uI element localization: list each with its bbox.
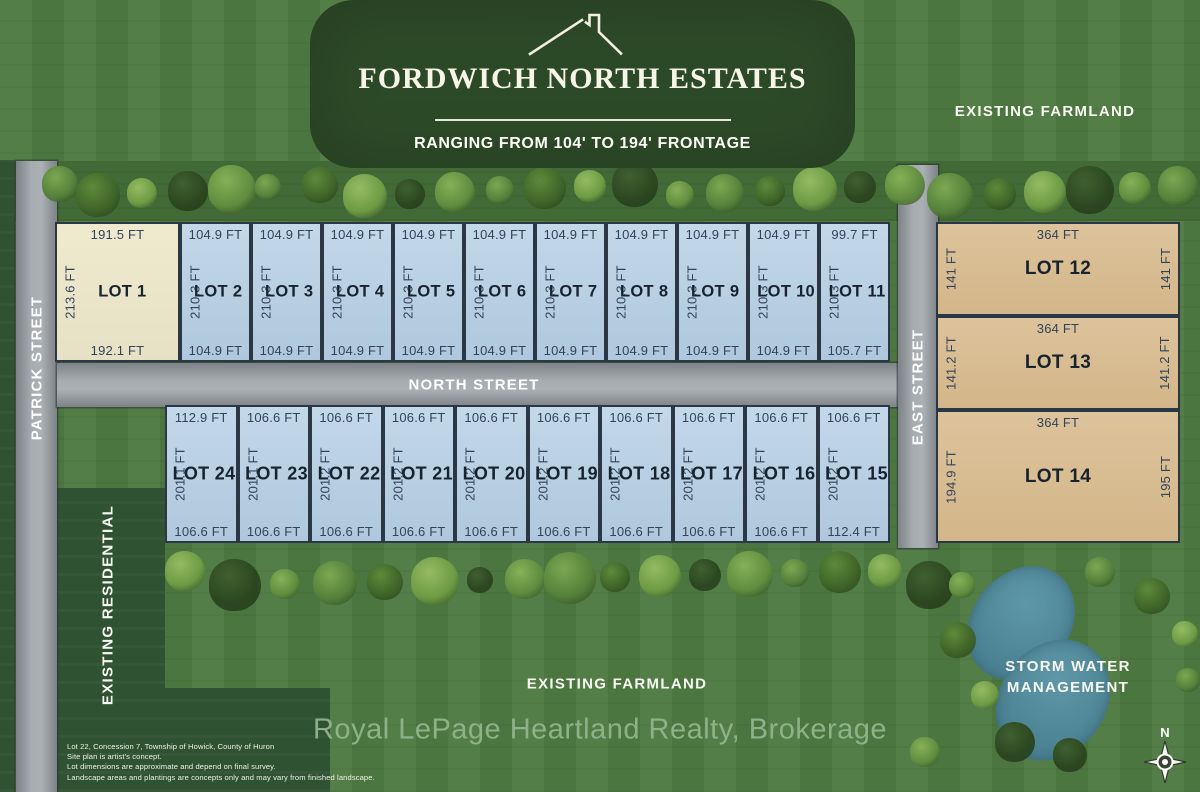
- lot-number-label: LOT 15: [825, 464, 888, 485]
- tree-icon: [995, 722, 1035, 762]
- lot-frontage-top: 106.6 FT: [682, 410, 736, 425]
- lot-number-label: LOT 6: [478, 283, 526, 302]
- tree-icon: [524, 167, 566, 209]
- lot-plot-lot-10: 104.9 FT210.3 FTLOT 10104.9 FT: [748, 222, 819, 362]
- left-edge-green: [0, 160, 15, 792]
- tree-icon: [755, 176, 785, 206]
- east-street-label: EAST STREET: [910, 329, 927, 446]
- tree-icon: [781, 559, 809, 587]
- lot-depth-left: 141.2 FT: [944, 336, 959, 390]
- tree-icon: [367, 564, 403, 600]
- tree-icon: [910, 737, 940, 767]
- lot-frontage-bottom: 106.6 FT: [464, 524, 518, 539]
- lot-frontage-top: 99.7 FT: [831, 227, 877, 242]
- north-street-label: NORTH STREET: [408, 377, 539, 394]
- tree-icon: [209, 559, 261, 611]
- tree-icon: [940, 622, 976, 658]
- lot-plot-lot-6: 104.9 FT210.3 FTLOT 6104.9 FT: [464, 222, 535, 362]
- disclaimer-line: Site plan is artist's concept.: [67, 752, 375, 762]
- lot-depth-left: 194.9 FT: [944, 450, 959, 504]
- lot-frontage-bottom: 106.6 FT: [609, 524, 663, 539]
- lot-number-label: LOT 23: [245, 464, 308, 485]
- lot-plot-lot-21: 106.6 FT201.2 FTLOT 21106.6 FT: [383, 405, 456, 543]
- lot-plot-lot-3: 104.9 FT210.3 FTLOT 3104.9 FT: [251, 222, 322, 362]
- tree-icon: [574, 170, 606, 202]
- tree-icon: [270, 569, 300, 599]
- storm-water-line2: MANAGEMENT: [1005, 677, 1130, 698]
- lot-frontage-top: 364 FT: [1037, 227, 1079, 242]
- lot-frontage-top: 106.6 FT: [247, 410, 301, 425]
- lot-frontage-top: 106.6 FT: [319, 410, 373, 425]
- tree-icon: [706, 174, 744, 212]
- lot-plot-lot-8: 104.9 FT210.3 FTLOT 8104.9 FT: [606, 222, 677, 362]
- patrick-street-label: PATRICK STREET: [29, 296, 46, 441]
- lot-number-label: LOT 4: [336, 283, 384, 302]
- tree-icon: [885, 165, 925, 205]
- lot-frontage-bottom: 106.6 FT: [682, 524, 736, 539]
- disclaimer-line: Landscape areas and plantings are concep…: [67, 773, 375, 783]
- tree-icon: [76, 173, 120, 217]
- lot-number-label: LOT 5: [407, 283, 455, 302]
- tree-icon: [168, 171, 208, 211]
- tree-icon: [255, 174, 281, 200]
- lot-number-label: LOT 17: [680, 464, 743, 485]
- tree-icon: [727, 551, 773, 597]
- disclaimer-line: Lot dimensions are approximate and depen…: [67, 762, 375, 772]
- lot-frontage-top: 191.5 FT: [91, 227, 145, 242]
- lot-frontage-bottom: 106.6 FT: [247, 524, 301, 539]
- storm-water-label: STORM WATER MANAGEMENT: [1005, 656, 1130, 698]
- lot-plot-lot-19: 106.6 FT201.2 FTLOT 19106.6 FT: [528, 405, 601, 543]
- lot-plot-lot-4: 104.9 FT210.3 FTLOT 4104.9 FT: [322, 222, 393, 362]
- tree-icon: [395, 179, 425, 209]
- storm-water-line1: STORM WATER: [1005, 656, 1130, 677]
- tree-icon: [1024, 171, 1066, 213]
- tree-icon: [971, 681, 999, 709]
- tree-icon: [343, 174, 387, 218]
- tree-icon: [819, 551, 861, 593]
- tree-icon: [1158, 166, 1198, 206]
- lot-number-label: LOT 1: [98, 283, 146, 302]
- tree-icon: [505, 559, 545, 599]
- tree-icon: [844, 171, 876, 203]
- lot-frontage-bottom: 106.6 FT: [392, 524, 446, 539]
- tree-icon: [165, 551, 205, 591]
- lot-number-label: LOT 22: [318, 464, 381, 485]
- lot-frontage-bottom: 106.6 FT: [537, 524, 591, 539]
- house-roof-icon: [522, 12, 644, 58]
- lot-frontage-top: 104.9 FT: [544, 227, 598, 242]
- lot-plot-lot-9: 104.9 FT210.3 FTLOT 9104.9 FT: [677, 222, 748, 362]
- lot-frontage-bottom: 104.9 FT: [260, 343, 314, 358]
- lot-frontage-top: 104.9 FT: [615, 227, 669, 242]
- lot-frontage-top: 106.6 FT: [754, 410, 808, 425]
- tree-icon: [1066, 166, 1114, 214]
- tree-icon: [984, 178, 1016, 210]
- existing-farmland-top-label: EXISTING FARMLAND: [955, 103, 1135, 120]
- tree-icon: [435, 172, 475, 212]
- lot-frontage-bottom: 106.6 FT: [319, 524, 373, 539]
- tree-icon: [1176, 668, 1200, 692]
- site-plan: PATRICK STREET NORTH STREET EAST STREET …: [0, 0, 1200, 792]
- brokerage-watermark: Royal LePage Heartland Realty, Brokerage: [313, 714, 887, 747]
- lot-plot-lot-11: 99.7 FT210.3 FTLOT 11105.7 FT: [819, 222, 890, 362]
- lot-number-label: LOT 3: [265, 283, 313, 302]
- tree-icon: [127, 178, 157, 208]
- lot-frontage-top: 104.9 FT: [402, 227, 456, 242]
- lot-plot-lot-12: 364 FT141 FT141 FTLOT 12: [936, 222, 1180, 316]
- development-title: FORDWICH NORTH ESTATES: [310, 62, 855, 96]
- tree-icon: [467, 567, 493, 593]
- banner-divider: [435, 119, 731, 121]
- tree-icon: [544, 552, 596, 604]
- lot-plot-lot-17: 106.6 FT201.2 FTLOT 17106.6 FT: [673, 405, 746, 543]
- lot-number-label: LOT 9: [691, 283, 739, 302]
- tree-icon: [411, 557, 459, 605]
- lot-number-label: LOT 13: [1025, 352, 1091, 374]
- compass-north-label: N: [1160, 725, 1169, 740]
- lot-plot-lot-14: 364 FT194.9 FT195 FTLOT 14: [936, 410, 1180, 543]
- lot-number-label: LOT 20: [463, 464, 526, 485]
- lot-plot-lot-20: 106.6 FT201.2 FTLOT 20106.6 FT: [455, 405, 528, 543]
- tree-icon: [1119, 172, 1151, 204]
- lot-plot-lot-5: 104.9 FT210.3 FTLOT 5104.9 FT: [393, 222, 464, 362]
- lot-number-label: LOT 11: [829, 283, 886, 302]
- lot-frontage-top: 364 FT: [1037, 321, 1079, 336]
- disclaimer-line: Lot 22, Concession 7, Township of Howick…: [67, 742, 375, 752]
- lot-plot-lot-7: 104.9 FT210.3 FTLOT 7104.9 FT: [535, 222, 606, 362]
- compass-icon: N: [1133, 722, 1197, 792]
- lot-frontage-top: 104.9 FT: [473, 227, 527, 242]
- lot-frontage-top: 112.9 FT: [175, 410, 228, 425]
- tree-icon: [1053, 738, 1087, 772]
- lot-number-label: LOT 14: [1025, 466, 1091, 488]
- lot-frontage-top: 104.9 FT: [331, 227, 385, 242]
- lot-plot-lot-16: 106.6 FT201.2 FTLOT 16106.6 FT: [745, 405, 818, 543]
- lot-depth-side: 213.6 FT: [63, 265, 78, 319]
- tree-icon: [927, 173, 973, 219]
- lot-frontage-top: 104.9 FT: [686, 227, 740, 242]
- lot-frontage-top: 106.6 FT: [392, 410, 446, 425]
- lot-number-label: LOT 2: [194, 283, 242, 302]
- lot-number-label: LOT 7: [549, 283, 597, 302]
- tree-icon: [208, 165, 256, 213]
- lot-frontage-bottom: 104.9 FT: [402, 343, 456, 358]
- lot-number-label: LOT 8: [620, 283, 668, 302]
- lot-frontage-bottom: 112.4 FT: [827, 524, 880, 539]
- lot-frontage-bottom: 104.9 FT: [544, 343, 598, 358]
- lot-number-label: LOT 19: [535, 464, 598, 485]
- title-banner: FORDWICH NORTH ESTATES RANGING FROM 104'…: [310, 0, 855, 168]
- lot-depth-right: 141.2 FT: [1158, 336, 1173, 390]
- lot-frontage-top: 104.9 FT: [189, 227, 243, 242]
- lot-plot-lot-2: 104.9 FT210.3 FTLOT 2104.9 FT: [180, 222, 251, 362]
- lot-frontage-top: 364 FT: [1037, 415, 1079, 430]
- tree-icon: [793, 167, 837, 211]
- lot-plot-lot-18: 106.6 FT201.2 FTLOT 18106.6 FT: [600, 405, 673, 543]
- lot-frontage-bottom: 104.9 FT: [331, 343, 385, 358]
- existing-residential-label: EXISTING RESIDENTIAL: [100, 505, 117, 705]
- tree-icon: [302, 167, 338, 203]
- tree-icon: [600, 562, 630, 592]
- lot-plot-lot-13: 364 FT141.2 FT141.2 FTLOT 13: [936, 316, 1180, 410]
- tree-icon: [1172, 621, 1198, 647]
- tree-icon: [1134, 578, 1170, 614]
- tree-icon: [639, 555, 681, 597]
- lot-number-label: LOT 12: [1025, 258, 1091, 280]
- tree-icon: [949, 572, 975, 598]
- lot-frontage-top: 106.6 FT: [609, 410, 663, 425]
- lot-frontage-bottom: 192.1 FT: [91, 343, 145, 358]
- lot-plot-lot-1: 191.5 FT213.6 FTLOT 1192.1 FT: [55, 222, 180, 362]
- lot-frontage-top: 106.6 FT: [827, 410, 881, 425]
- lot-frontage-bottom: 106.6 FT: [754, 524, 808, 539]
- lot-number-label: LOT 24: [173, 464, 236, 485]
- lot-depth-right: 195 FT: [1158, 455, 1173, 497]
- lot-frontage-bottom: 105.7 FT: [828, 343, 882, 358]
- lot-plot-lot-23: 106.6 FT201.1 FTLOT 23106.6 FT: [238, 405, 311, 543]
- lot-frontage-bottom: 104.9 FT: [757, 343, 811, 358]
- tree-icon: [486, 176, 514, 204]
- frontage-subtitle: RANGING FROM 104' TO 194' FRONTAGE: [310, 135, 855, 153]
- patrick-street-road: [16, 161, 57, 792]
- tree-icon: [666, 181, 694, 209]
- lot-frontage-bottom: 106.6 FT: [174, 524, 228, 539]
- tree-icon: [906, 561, 954, 609]
- lot-number-label: LOT 21: [390, 464, 453, 485]
- tree-icon: [689, 559, 721, 591]
- lot-frontage-top: 104.9 FT: [260, 227, 314, 242]
- lot-frontage-top: 104.9 FT: [757, 227, 811, 242]
- lot-plot-lot-22: 106.6 FT201.2 FTLOT 22106.6 FT: [310, 405, 383, 543]
- disclaimer: Lot 22, Concession 7, Township of Howick…: [67, 742, 375, 783]
- lot-frontage-bottom: 104.9 FT: [615, 343, 669, 358]
- tree-icon: [1085, 557, 1115, 587]
- tree-icon: [868, 554, 902, 588]
- lot-frontage-bottom: 104.9 FT: [473, 343, 527, 358]
- lot-plot-lot-15: 106.6 FT201.2 FTLOT 15112.4 FT: [818, 405, 891, 543]
- lot-frontage-top: 106.6 FT: [464, 410, 518, 425]
- lot-depth-left: 141 FT: [944, 248, 959, 290]
- lot-depth-right: 141 FT: [1158, 248, 1173, 290]
- lot-number-label: LOT 16: [753, 464, 816, 485]
- lot-number-label: LOT 18: [608, 464, 671, 485]
- tree-icon: [42, 166, 78, 202]
- lot-number-label: LOT 10: [757, 283, 815, 302]
- existing-farmland-bottom-label: EXISTING FARMLAND: [527, 676, 707, 693]
- lot-frontage-top: 106.6 FT: [537, 410, 591, 425]
- lot-plot-lot-24: 112.9 FT201.1 FTLOT 24106.6 FT: [165, 405, 238, 543]
- tree-icon: [313, 561, 357, 605]
- lot-frontage-bottom: 104.9 FT: [686, 343, 740, 358]
- lot-frontage-bottom: 104.9 FT: [189, 343, 243, 358]
